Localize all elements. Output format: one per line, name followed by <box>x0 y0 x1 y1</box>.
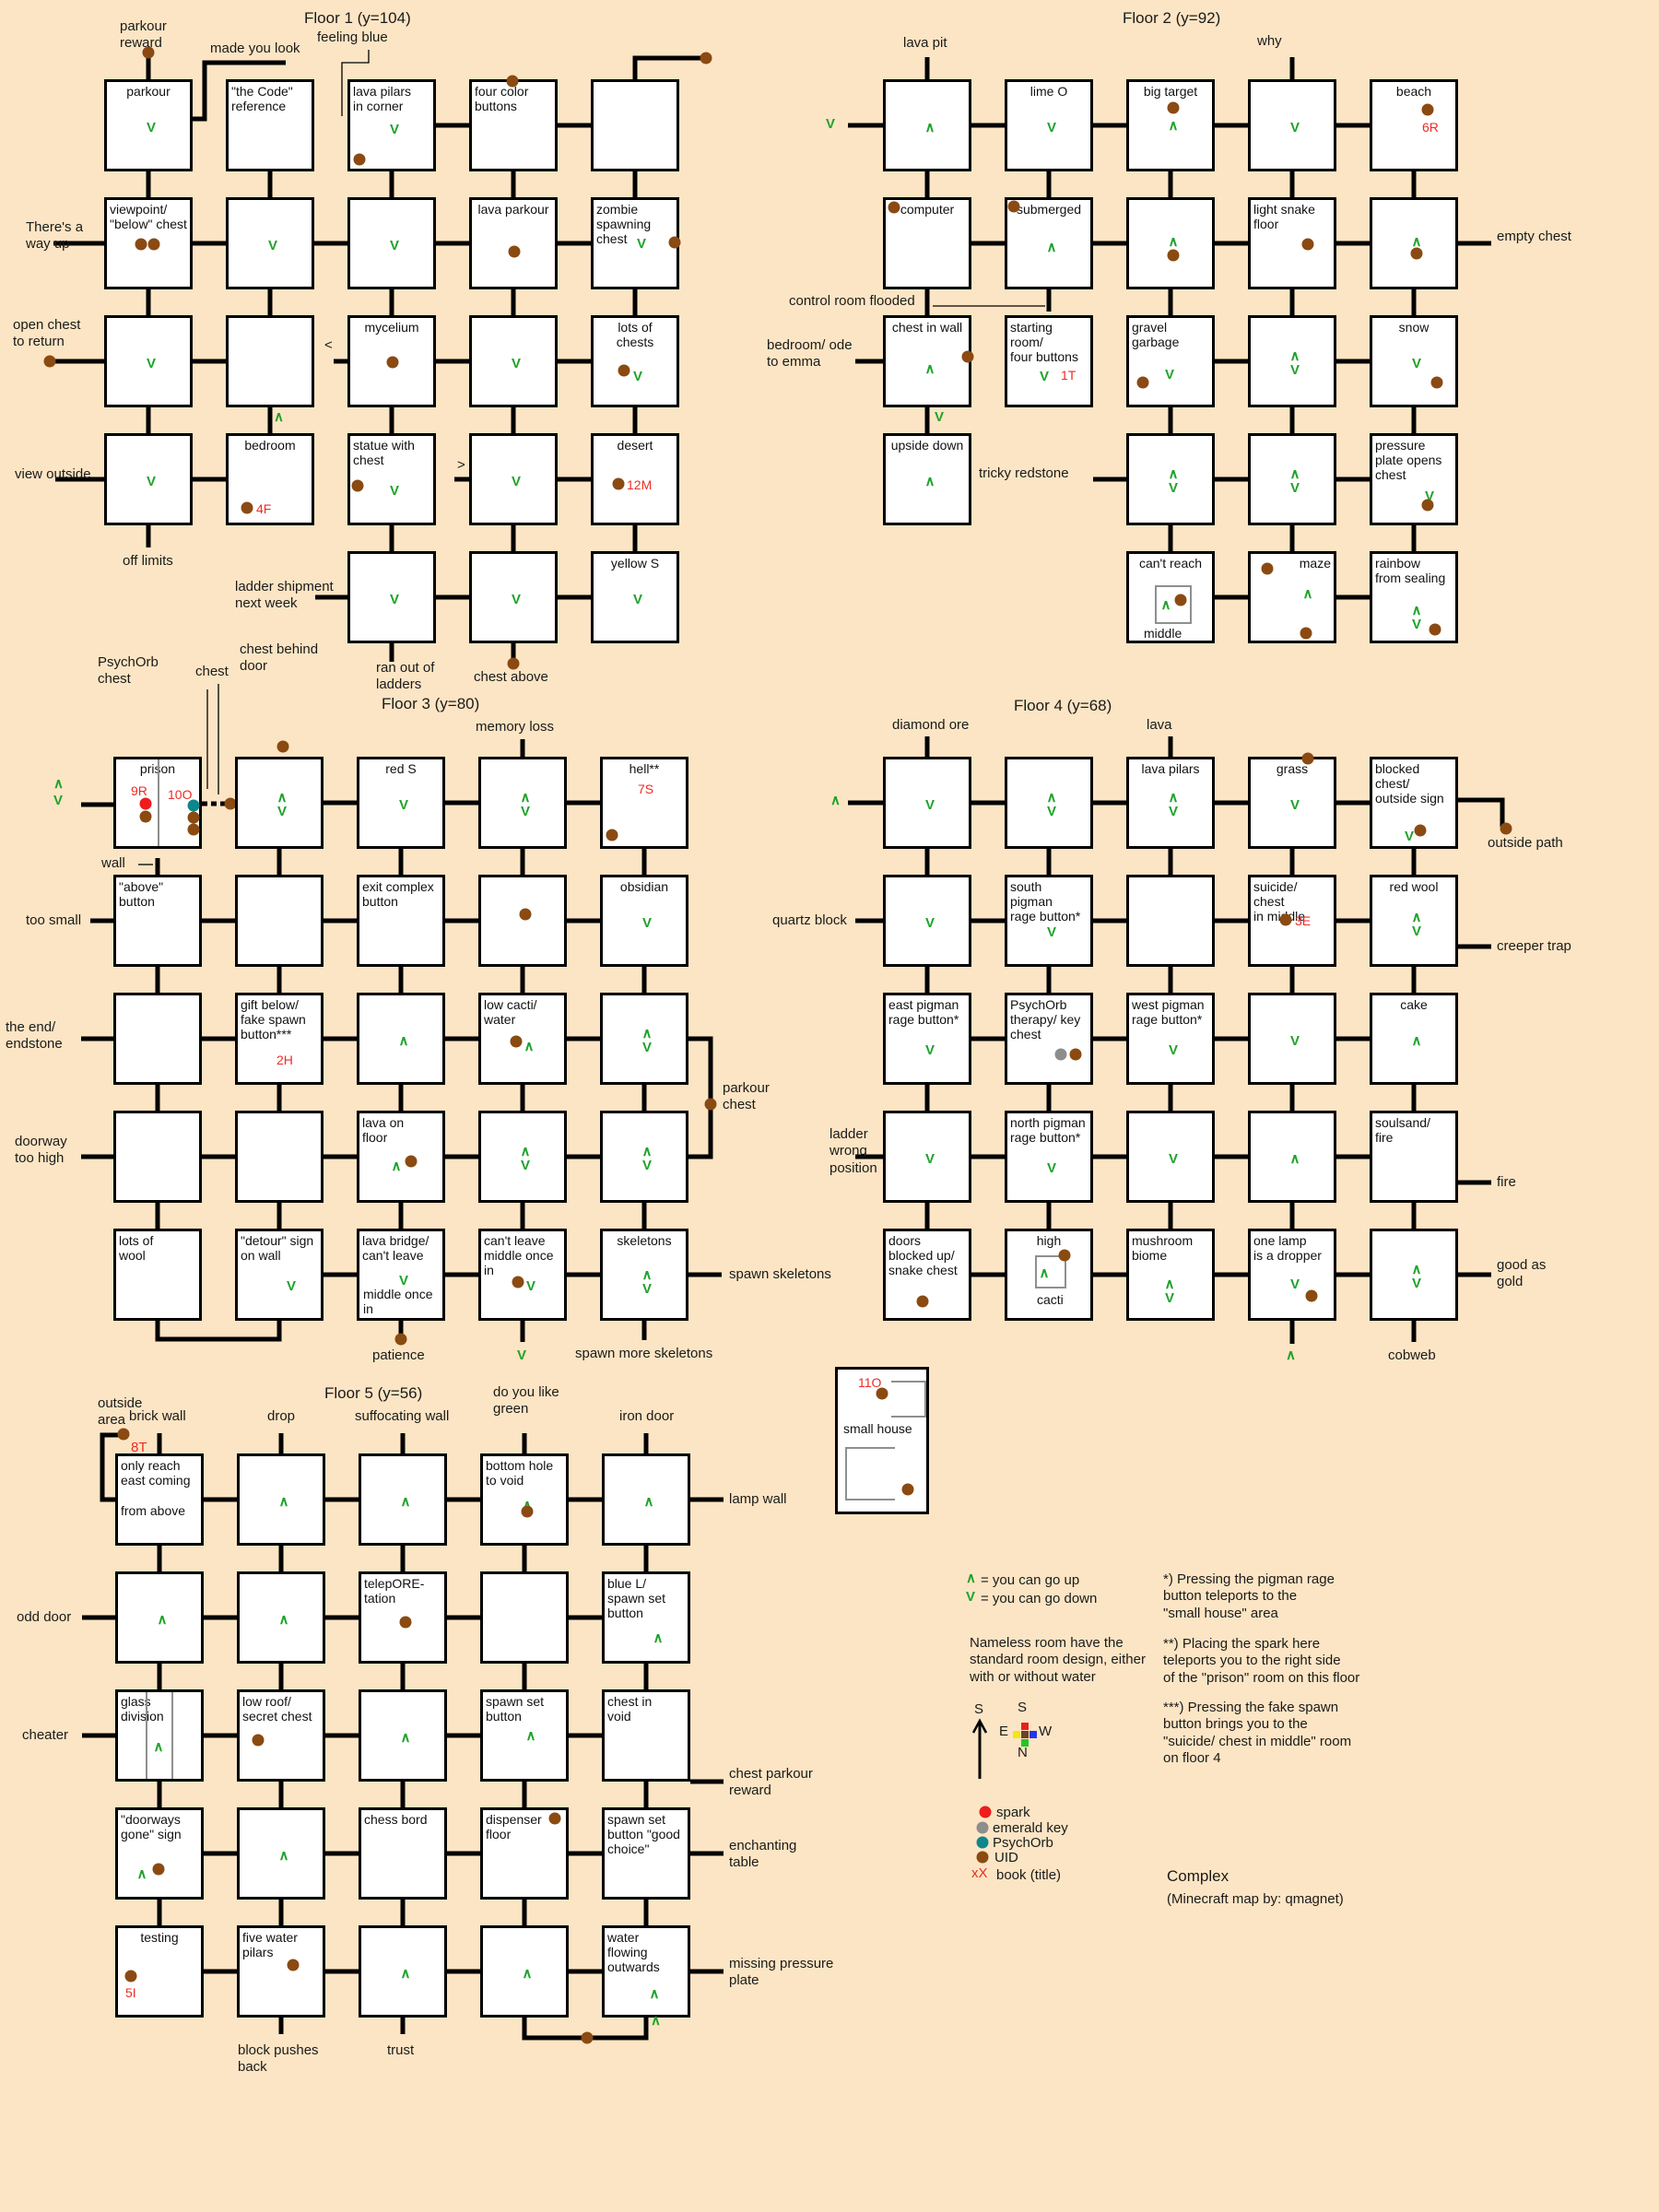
room-unnamed <box>480 1571 569 1664</box>
room-label: chest in void <box>605 1692 688 1725</box>
map-label: good as gold <box>1497 1257 1546 1291</box>
up-arrow-symbol: ∧ <box>653 1631 664 1645</box>
map-label: do you like green <box>493 1384 559 1418</box>
room-unnamed: V <box>104 315 193 407</box>
room-statue-with-chest: statue with chestV <box>347 433 436 525</box>
uid-marker <box>253 1735 265 1747</box>
emerald-key-marker <box>1055 1049 1067 1061</box>
room-testing: testing5I <box>115 1925 204 2018</box>
map-label: doorway too high <box>15 1134 67 1168</box>
room-detour-sign-on-wall: "detour" sign on wallV <box>235 1229 324 1321</box>
room-unnamed <box>113 993 202 1085</box>
room-label: low cacti/ water <box>481 995 564 1029</box>
down-arrow-symbol: V <box>1290 121 1300 135</box>
room-label: gift below/ fake spawn button*** <box>238 995 321 1044</box>
map-label: xX <box>971 1865 988 1882</box>
room-unnamed <box>1126 875 1215 967</box>
uid-marker <box>1168 250 1180 262</box>
map-label: < <box>324 337 333 354</box>
uid-marker <box>354 154 366 166</box>
room-unnamed: ∧ V <box>235 757 324 849</box>
uid-marker <box>188 812 200 824</box>
room-unnamed: ∧ <box>359 1925 447 2018</box>
room-label: soulsand/ fire <box>1372 1113 1455 1147</box>
up-down-arrow-symbol: ∧ V <box>1169 467 1179 495</box>
down-arrow-symbol: V <box>1165 368 1174 382</box>
map-label: PsychOrb chest <box>98 654 159 688</box>
uid-marker <box>613 478 625 490</box>
room-label: can't leave middle once in <box>481 1231 564 1280</box>
room-unnamed: ∧ <box>115 1571 204 1664</box>
uid-marker <box>902 1484 914 1496</box>
up-arrow-symbol: ∧ <box>1412 1034 1422 1048</box>
room-label: east pigman rage button* <box>886 995 969 1029</box>
room-red-s: red SV <box>357 757 445 849</box>
down-arrow-symbol: V <box>512 475 521 488</box>
map-label: parkour reward <box>120 18 167 53</box>
room-unnamed: ∧ <box>883 79 971 171</box>
room-label: red wool <box>1372 877 1455 896</box>
map-label: trust <box>387 2042 414 2059</box>
room-label: yellow S <box>594 554 677 572</box>
room-unnamed: V <box>347 551 436 643</box>
uid-marker <box>1500 823 1512 835</box>
room-light-snake-floor: light snake floor <box>1248 197 1336 289</box>
room-gift-below-fake-spawn-button: gift below/ fake spawn button***2H <box>235 993 324 1085</box>
room-unnamed: ∧ V <box>1126 433 1215 525</box>
room-unnamed: ∧ V <box>1370 1229 1458 1321</box>
room-bottom-hole-to-void: bottom hole to void∧ <box>480 1453 569 1546</box>
uid-marker <box>888 202 900 214</box>
room-label: lava pilars in corner <box>350 82 433 115</box>
room-water-flowing-outwards: water flowing outwards∧ <box>602 1925 690 2018</box>
up-arrow-symbol: ∧ <box>1290 1152 1300 1166</box>
up-arrow-symbol: ∧ <box>137 1867 147 1881</box>
uid-marker <box>1422 104 1434 116</box>
uid-marker <box>507 76 519 88</box>
glass-divider <box>146 1692 147 1779</box>
map-label: chest parkour reward <box>729 1766 813 1800</box>
map-label: patience <box>372 1347 425 1364</box>
room-above-button: "above" button <box>113 875 202 967</box>
down-arrow-symbol: V <box>526 1279 535 1293</box>
up-down-arrow-symbol: ∧ V <box>521 1145 531 1172</box>
up-arrow-symbol: ∧ <box>523 1967 533 1981</box>
room-doors-blocked-up-snake-chest: doors blocked up/ snake chest <box>883 1229 971 1321</box>
map-label: enchanting table <box>729 1838 796 1872</box>
uid-marker <box>277 741 289 753</box>
room-bedroom: bedroom4F <box>226 433 314 525</box>
room-sublabel: middle once in <box>363 1287 433 1316</box>
minecraft-map-diagram: parkourV"the Code" referencelava pilars … <box>0 0 1659 2212</box>
map-label: S <box>1018 1700 1027 1716</box>
room-label: viewpoint/ "below" chest <box>107 200 190 233</box>
room-label: hell** <box>603 759 686 778</box>
map-label: = you can go down <box>981 1591 1097 1607</box>
uid-marker <box>1280 914 1292 926</box>
room-label: statue with chest <box>350 436 433 469</box>
down-arrow-symbol: V <box>642 916 652 930</box>
book-title: 5I <box>125 1985 136 2000</box>
down-arrow-symbol: V <box>925 1152 935 1166</box>
up-down-arrow-symbol: ∧ V <box>642 1027 653 1054</box>
up-arrow-symbol: ∧ <box>1169 119 1179 133</box>
book-title: 4F <box>256 501 271 516</box>
up-down-arrow-symbol: ∧ V <box>1290 467 1300 495</box>
room-lime-o: lime OV <box>1005 79 1093 171</box>
map-label: > <box>457 457 465 474</box>
up-arrow-symbol: ∧ <box>526 1729 536 1743</box>
room-unnamed: ∧ <box>1370 197 1458 289</box>
map-label: V <box>966 1589 975 1606</box>
map-label: S <box>974 1701 983 1718</box>
room-unnamed: ∧ <box>237 1453 325 1546</box>
map-label: *) Pressing the pigman rage button telep… <box>1163 1571 1335 1622</box>
map-label: Floor 5 (y=56) <box>324 1384 422 1404</box>
map-label: chest behind door <box>240 641 318 676</box>
up-arrow-symbol: ∧ <box>925 362 935 376</box>
map-label: 8T <box>131 1440 147 1456</box>
room-starting-room-four-buttons: starting room/ four buttonsV1T <box>1005 315 1093 407</box>
room-chest-in-wall: chest in wall∧ <box>883 315 971 407</box>
room-the-code-reference: "the Code" reference <box>226 79 314 171</box>
up-arrow-symbol: ∧ <box>392 1159 402 1173</box>
book-title: 11O <box>858 1375 881 1390</box>
room-unnamed <box>226 315 314 407</box>
uid-marker <box>188 824 200 836</box>
room-lava-on-floor: lava on floor∧ <box>357 1111 445 1203</box>
map-label: parkour chest <box>723 1080 770 1114</box>
down-arrow-symbol: V <box>1047 1161 1056 1175</box>
uid-marker <box>509 246 521 258</box>
room-unnamed: V <box>469 551 558 643</box>
uid-marker <box>1008 201 1020 213</box>
room-lots-of-wool: lots of wool <box>113 1229 202 1321</box>
uid-marker <box>1059 1250 1071 1262</box>
room-label: south pigman rage button* <box>1007 877 1090 926</box>
down-arrow-symbol: V <box>268 239 277 253</box>
map-label: ladder wrong position <box>829 1126 877 1177</box>
up-arrow-symbol: ∧ <box>1303 587 1313 601</box>
map-label: creeper trap <box>1497 938 1571 955</box>
map-label: Floor 2 (y=92) <box>1123 9 1220 29</box>
room-label: red S <box>359 759 442 778</box>
room-blocked-chest-outside-sign: blocked chest/ outside signV <box>1370 757 1458 849</box>
map-label: quartz block <box>772 912 847 929</box>
uid-marker <box>153 1864 165 1876</box>
room-label: four color buttons <box>472 82 555 115</box>
map-label: wall <box>101 855 125 872</box>
book-title: 7S <box>638 782 653 796</box>
up-down-arrow-symbol: ∧ V <box>277 791 288 818</box>
map-label: chest <box>195 664 229 680</box>
map-label: empty chest <box>1497 229 1571 245</box>
room-small-house: small house11O <box>835 1367 929 1514</box>
room-label: beach <box>1372 82 1455 100</box>
psychorb-marker <box>977 1837 989 1849</box>
room-sublabel: cacti <box>1037 1292 1064 1307</box>
room-obsidian: obsidianV <box>600 875 688 967</box>
down-arrow-symbol: V <box>512 593 521 606</box>
down-arrow-symbol: V <box>637 237 646 251</box>
room-unnamed: ∧ V <box>600 1111 688 1203</box>
room-north-pigman-rage-button: north pigman rage button*V <box>1005 1111 1093 1203</box>
room-doorways-gone-sign: "doorways gone" sign∧ <box>115 1807 204 1900</box>
down-arrow-symbol: V <box>925 798 935 812</box>
room-label: obsidian <box>603 877 686 896</box>
room-label: desert <box>594 436 677 454</box>
room-grass: grassV <box>1248 757 1336 849</box>
down-arrow-symbol: V <box>1040 370 1049 383</box>
map-label: tricky redstone <box>979 465 1069 482</box>
map-label: Floor 1 (y=104) <box>304 9 411 29</box>
map-label: cheater <box>22 1727 68 1744</box>
up-arrow-symbol: ∧ <box>1161 598 1171 612</box>
room-spawn-set-button-good-choice: spawn set button "good choice" <box>602 1807 690 1900</box>
uid-marker <box>1415 825 1427 837</box>
up-down-arrow-symbol: ∧ V <box>642 1145 653 1172</box>
room-chess-bord: chess bord <box>359 1807 447 1900</box>
room-computer: computer <box>883 197 971 289</box>
uid-marker <box>618 365 630 377</box>
room-upside-down: upside down∧ <box>883 433 971 525</box>
room-label: low roof/ secret chest <box>240 1692 323 1725</box>
map-label: spawn more skeletons <box>575 1346 712 1362</box>
room-label: lime O <box>1007 82 1090 100</box>
book-title: 12M <box>627 477 652 492</box>
uid-marker <box>148 239 160 251</box>
room-unnamed: ∧ <box>237 1571 325 1664</box>
map-label: drop <box>267 1408 295 1425</box>
room-label: lava parkour <box>472 200 555 218</box>
down-arrow-symbol: V <box>147 121 156 135</box>
map-label: chest above <box>474 669 548 686</box>
room-skeletons: skeletons∧ V <box>600 1229 688 1321</box>
uid-marker <box>395 1334 407 1346</box>
up-down-arrow-symbol: ∧ V <box>521 791 531 818</box>
room-unnamed: ∧ <box>357 993 445 1085</box>
map-label: (Minecraft map by: qmagnet) <box>1167 1891 1344 1908</box>
room-label: chest in wall <box>886 318 969 336</box>
room-cant-reach-middle: can't reachmiddle∧ <box>1126 551 1215 643</box>
room-unnamed: ∧ V <box>1248 433 1336 525</box>
book-title: 3E <box>1295 913 1311 928</box>
book-title: 9R <box>131 783 147 798</box>
map-label: ∧ <box>830 793 841 809</box>
uid-marker <box>1070 1049 1082 1061</box>
up-arrow-symbol: ∧ <box>401 1967 411 1981</box>
uid-marker <box>512 1277 524 1288</box>
house-shape <box>845 1447 895 1500</box>
uid-marker <box>387 357 399 369</box>
map-label: There's a way up <box>26 219 83 253</box>
up-down-arrow-symbol: ∧ V <box>1047 791 1057 818</box>
down-arrow-symbol: V <box>1405 829 1414 843</box>
compass-square <box>1030 1731 1037 1738</box>
room-mycelium: mycelium <box>347 315 436 407</box>
map-label: fire <box>1497 1174 1516 1191</box>
room-label: bedroom <box>229 436 312 454</box>
room-only-reach-east-coming-from-above: only reach east coming from above <box>115 1453 204 1546</box>
room-label: only reach east coming from above <box>118 1456 201 1520</box>
uid-marker <box>1175 594 1187 606</box>
room-unnamed: V <box>469 433 558 525</box>
down-arrow-symbol: V <box>633 593 642 606</box>
uid-marker <box>1302 239 1314 251</box>
map-label: UID <box>994 1850 1018 1866</box>
room-yellow-s: yellow SV <box>591 551 679 643</box>
uid-marker <box>140 811 152 823</box>
room-label: pressure plate opens chest <box>1372 436 1455 485</box>
room-west-pigman-rage-button: west pigman rage button*V <box>1126 993 1215 1085</box>
room-unnamed: V <box>1248 79 1336 171</box>
spark-marker <box>140 798 152 810</box>
map-label: spark <box>996 1805 1030 1821</box>
down-arrow-symbol: V <box>390 484 399 498</box>
uid-marker <box>241 502 253 514</box>
up-arrow-symbol: ∧ <box>925 121 935 135</box>
uid-marker <box>1302 753 1314 765</box>
map-label: V <box>826 116 835 133</box>
uid-marker <box>606 829 618 841</box>
room-east-pigman-rage-button: east pigman rage button*V <box>883 993 971 1085</box>
room-cake: cake∧ <box>1370 993 1458 1085</box>
down-arrow-symbol: V <box>390 123 399 136</box>
spark-marker <box>980 1806 992 1818</box>
up-down-arrow-symbol: ∧ V <box>1290 349 1300 377</box>
book-title: 6R <box>1422 120 1439 135</box>
room-soulsand-fire: soulsand/ fire <box>1370 1111 1458 1203</box>
uid-marker <box>400 1617 412 1629</box>
room-label: lava pilars <box>1129 759 1212 778</box>
room-one-lamp-is-a-dropper: one lamp is a dropperV <box>1248 1229 1336 1321</box>
room-unnamed: ∧ <box>359 1453 447 1546</box>
room-four-color-buttons: four color buttons <box>469 79 558 171</box>
room-desert: desert12M <box>591 433 679 525</box>
room-spawn-set-button: spawn set button∧ <box>480 1689 569 1782</box>
room-unnamed <box>235 1111 324 1203</box>
room-label: lots of wool <box>116 1231 199 1265</box>
room-suicide-chest-in-middle: suicide/ chest in middle3E <box>1248 875 1336 967</box>
room-label: "above" button <box>116 877 199 911</box>
room-prison: prison9R10O <box>113 757 202 849</box>
up-arrow-symbol: ∧ <box>524 1040 535 1053</box>
room-label: PsychOrb therapy/ key chest <box>1007 995 1090 1044</box>
uid-marker <box>352 480 364 492</box>
room-label: upside down <box>886 436 969 454</box>
uid-marker <box>977 1852 989 1864</box>
down-arrow-symbol: V <box>287 1279 296 1293</box>
down-arrow-symbol: V <box>512 357 521 371</box>
down-arrow-symbol: V <box>925 916 935 930</box>
down-arrow-symbol: V <box>399 1274 408 1288</box>
down-arrow-symbol: V <box>390 239 399 253</box>
down-arrow-symbol: V <box>147 475 156 488</box>
map-label: ∧ <box>651 2013 661 2030</box>
room-unnamed <box>591 79 679 171</box>
room-label: "doorways gone" sign <box>118 1810 201 1843</box>
room-sublabel: middle <box>1144 626 1182 641</box>
up-arrow-symbol: ∧ <box>279 1849 289 1863</box>
uid-marker <box>1422 500 1434 512</box>
room-unnamed <box>235 875 324 967</box>
connector-line <box>635 58 702 79</box>
room-unnamed: ∧ V <box>478 757 567 849</box>
room-label: light snake floor <box>1251 200 1334 233</box>
room-label: parkour <box>107 82 190 100</box>
map-label: cobweb <box>1388 1347 1436 1364</box>
room-label: lava bridge/ can't leave <box>359 1231 442 1265</box>
uid-marker <box>700 53 712 65</box>
map-label: diamond ore <box>892 717 969 734</box>
map-label: Nameless room have the standard room des… <box>970 1635 1146 1686</box>
room-unnamed <box>478 875 567 967</box>
map-label: N <box>1018 1745 1028 1761</box>
room-label: blue L/ spawn set button <box>605 1574 688 1623</box>
room-label: snow <box>1372 318 1455 336</box>
room-five-water-pilars: five water pilars <box>237 1925 325 2018</box>
up-arrow-symbol: ∧ <box>401 1495 411 1509</box>
room-glass-division: glass division∧ <box>115 1689 204 1782</box>
room-unnamed: ∧ <box>1248 1111 1336 1203</box>
room-viewpoint-below-chest: viewpoint/ "below" chest <box>104 197 193 289</box>
room-lava-pilars: lava pilars∧ V <box>1126 757 1215 849</box>
room-label: north pigman rage button* <box>1007 1113 1090 1147</box>
map-label: V <box>935 409 944 426</box>
uid-marker <box>508 658 520 670</box>
book-title: 10O <box>168 787 192 802</box>
room-label: grass <box>1251 759 1334 778</box>
house-shape <box>891 1381 926 1418</box>
uid-marker <box>288 1959 300 1971</box>
up-arrow-symbol: ∧ <box>1040 1266 1050 1280</box>
room-label: mycelium <box>350 318 433 336</box>
room-label: lots of chests <box>594 318 677 351</box>
room-unnamed: V <box>469 315 558 407</box>
uid-marker <box>1262 563 1274 575</box>
map-label: = you can go up <box>981 1572 1079 1589</box>
map-label: Complex <box>1167 1867 1229 1887</box>
map-label: the end/ endstone <box>6 1019 63 1053</box>
map-label: lava pit <box>903 35 947 52</box>
compass-square <box>1021 1731 1029 1738</box>
up-down-arrow-symbol: ∧ V <box>1412 911 1422 938</box>
down-arrow-symbol: V <box>1412 357 1421 371</box>
room-dispenser-floor: dispenser floor <box>480 1807 569 1900</box>
up-down-arrow-symbol: ∧ V <box>1412 604 1422 631</box>
down-arrow-symbol: V <box>390 593 399 606</box>
room-maze: maze∧ <box>1248 551 1336 643</box>
up-down-arrow-symbol: ∧ V <box>1169 791 1179 818</box>
uid-marker <box>520 909 532 921</box>
map-label: ∧ <box>966 1571 976 1587</box>
room-rainbow-from-sealing: rainbow from sealing∧ V <box>1370 551 1458 643</box>
room-label: high <box>1007 1231 1090 1250</box>
room-label: cake <box>1372 995 1455 1014</box>
room-label: doors blocked up/ snake chest <box>886 1231 969 1280</box>
connector-line <box>158 1321 279 1339</box>
room-sublabel: small house <box>843 1421 912 1436</box>
room-label: gravel garbage <box>1129 318 1212 351</box>
uid-marker <box>1411 248 1423 260</box>
map-label: feeling blue <box>317 29 388 46</box>
map-label: off limits <box>123 553 173 570</box>
room-hell: hell**7S <box>600 757 688 849</box>
room-unnamed: ∧ <box>359 1689 447 1782</box>
book-title: 1T <box>1061 368 1076 382</box>
room-unnamed: ∧ V <box>1248 315 1336 407</box>
room-label: skeletons <box>603 1231 686 1250</box>
